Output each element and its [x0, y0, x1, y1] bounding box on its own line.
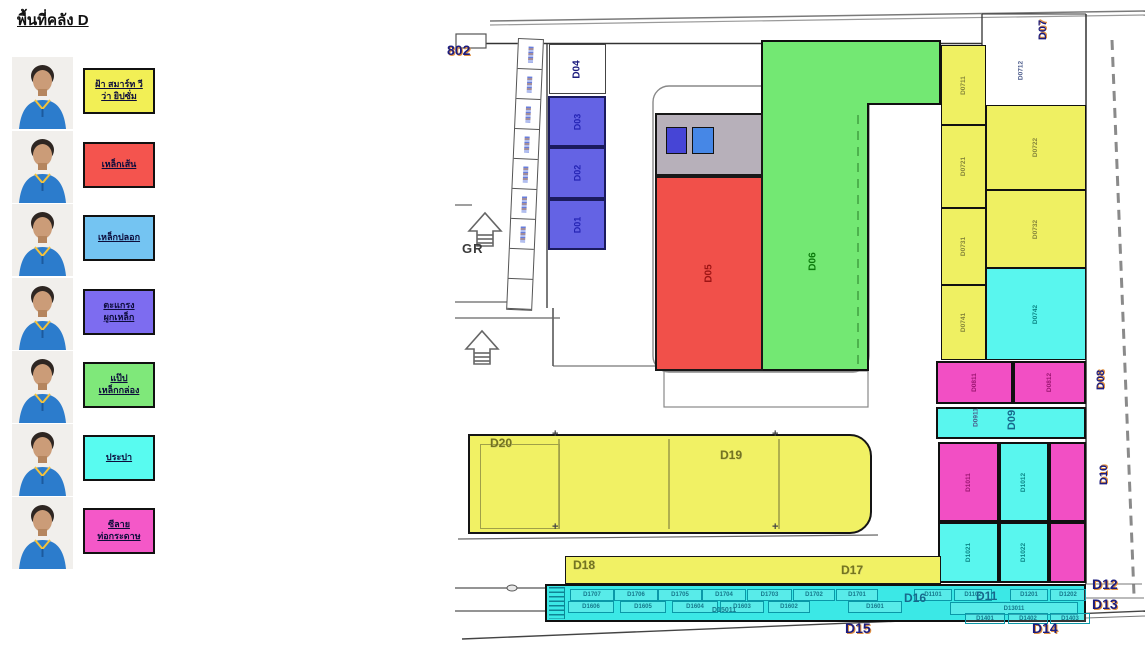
map-label-d15: D15 — [845, 620, 871, 636]
map-label-d14: D14 — [1032, 620, 1058, 636]
zone-label: D03 — [572, 113, 582, 130]
zone-d0732: D0732 — [986, 190, 1086, 268]
zone-label: D0731 — [960, 237, 967, 256]
zone-label: D0711 — [960, 76, 967, 95]
map-label-d0911: D0911 — [973, 388, 980, 448]
zone-label: D1012 — [1021, 472, 1028, 491]
corridor-room — [507, 279, 532, 310]
bay-box-d1702: D1702 — [793, 589, 835, 601]
corridor-room — [511, 189, 536, 220]
map-label-d13: D13 — [1092, 596, 1118, 612]
d20-bay-outline — [480, 444, 560, 529]
map-label-d15011: D15011 — [712, 607, 736, 614]
zone-d06 — [762, 41, 940, 370]
zone-blue-square-1 — [666, 127, 687, 154]
bay-box-d1703: D1703 — [747, 589, 792, 601]
hatch-edge — [549, 587, 565, 619]
tiny-room-code — [525, 106, 531, 122]
bay-box-d1201: D1201 — [1010, 589, 1048, 601]
corridor-room — [514, 129, 539, 160]
bay-box-d1705: D1705 — [658, 589, 702, 601]
road-line-mid — [458, 535, 878, 539]
bay-box-d1202: D1202 — [1050, 589, 1086, 601]
zone-label: D0722 — [1033, 138, 1040, 157]
zone-label: D0741 — [960, 313, 967, 332]
corridor-room — [508, 249, 533, 280]
tiny-room-code — [526, 76, 532, 92]
bay-box-d1706: D1706 — [614, 589, 658, 601]
zone-d04: D04 — [549, 44, 606, 94]
map-label-gr: GR — [462, 241, 484, 256]
zone-d01: D01 — [548, 199, 606, 250]
zone-label: D0732 — [1033, 219, 1040, 238]
zone-d1021: D1021 — [938, 522, 999, 583]
map-label-d19: D19 — [720, 448, 742, 462]
direction-arrow-lower — [466, 331, 498, 364]
corridor-room — [512, 159, 537, 190]
corridor-room — [518, 39, 543, 70]
zone-label: D0812 — [1046, 373, 1053, 392]
corridor-room — [515, 99, 540, 130]
zone-d0711: D0711 — [941, 45, 986, 125]
zone-d1011: D1011 — [938, 442, 999, 522]
site-boundary-dashed — [1112, 40, 1134, 595]
zone-label: D1011 — [965, 473, 972, 492]
zone-d0721: D0721 — [941, 125, 986, 208]
map-label-d20: D20 — [490, 436, 512, 450]
zone-d02: D02 — [548, 147, 606, 199]
corridor-room — [516, 69, 541, 100]
zone-d17-d18 — [565, 556, 941, 584]
zone-blue-square-2 — [692, 127, 714, 154]
bay-box-d1601: D1601 — [848, 601, 902, 613]
zone-d05: D05 — [655, 176, 763, 371]
zone-d1012: D1012 — [999, 442, 1049, 522]
zone-d03: D03 — [548, 96, 606, 147]
map-label-d10: D10 — [1098, 445, 1110, 505]
tiny-room-code — [521, 196, 527, 212]
zone-d19-d20: + + + + — [468, 434, 872, 534]
zone-label: D02 — [572, 165, 582, 182]
bay-box-d1606: D1606 — [568, 601, 614, 613]
map-label-d18: D18 — [573, 558, 595, 572]
map-label-d09: D09 — [1006, 390, 1018, 450]
map-label-d12: D12 — [1092, 576, 1118, 592]
tiny-room-code — [524, 136, 530, 152]
warehouse-plan-page: พื้นที่คลัง D ฝ้า สมาร์ท วีว่า ยิปซั่มเห… — [0, 0, 1145, 666]
zone-d0742: D0742 — [986, 268, 1086, 360]
zone-label: D0742 — [1033, 304, 1040, 323]
zone-d1022: D1022 — [999, 522, 1049, 583]
zone-magenta-col-bottom — [1049, 522, 1086, 583]
map-label-d08: D08 — [1095, 350, 1107, 410]
bay-box-d1707: D1707 — [570, 589, 614, 601]
tiny-room-code — [520, 226, 526, 242]
map-label-d0712: D0712 — [1018, 41, 1025, 101]
zone-label: D1022 — [1021, 543, 1028, 562]
zone-label: D05 — [703, 264, 714, 282]
zone-d0731: D0731 — [941, 208, 986, 285]
bay-box-d1605: D1605 — [620, 601, 666, 613]
map-label-d06: D06 — [808, 232, 819, 292]
corridor-room — [510, 219, 535, 250]
map-label-d07: D07 — [1037, 0, 1049, 60]
dock-apron — [664, 371, 868, 407]
zone-d0722: D0722 — [986, 105, 1086, 190]
zone-magenta-col-top — [1049, 442, 1086, 522]
zone-label: D01 — [572, 216, 582, 233]
zone-label: D1021 — [965, 543, 972, 562]
map-label-d16: D16 — [904, 591, 926, 605]
tiny-room-code — [527, 46, 533, 62]
map-label-802: 802 — [447, 42, 470, 58]
zone-label: D04 — [572, 60, 583, 78]
tiny-room-code — [522, 166, 528, 182]
bay-box-d1602: D1602 — [768, 601, 810, 613]
zone-d11-d16-strip: D1707D1706D1705D1704D1703D1702D1701D1101… — [545, 584, 1086, 622]
zone-d0741: D0741 — [941, 285, 986, 360]
zone-label: D0721 — [960, 157, 967, 176]
bay-box-d1704: D1704 — [702, 589, 746, 601]
zone-d0812: D0812 — [1013, 361, 1086, 404]
bay-box-d1401: D1401 — [965, 613, 1005, 624]
bay-box-d1701: D1701 — [836, 589, 878, 601]
map-label-d17: D17 — [841, 563, 863, 577]
map-label-d11: D11 — [976, 589, 997, 603]
